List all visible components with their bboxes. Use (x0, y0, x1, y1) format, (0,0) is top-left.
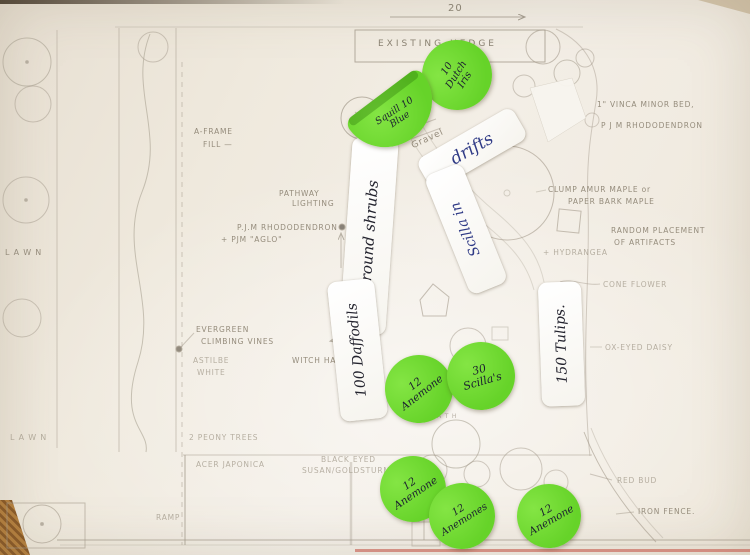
white-label-text: Around shrubs (356, 179, 382, 292)
pencil-note-pathway: PATHWAY (279, 189, 320, 198)
pencil-note-vinca: 1" VINCA MINOR BED, (597, 100, 694, 109)
top-dimension-label: 20 (448, 3, 463, 14)
green-sticker-text: 30Scilla's (459, 359, 504, 393)
green-sticker-text: 10DutchIris (435, 53, 479, 96)
pencil-note-susan-goldsturm: SUSAN/GOLDSTURM (302, 466, 391, 475)
pencil-note-cone-flower: CONE FLOWER (603, 280, 667, 289)
pencil-note-pjm-rhododendron-left: P.J.M RHODODENDRON (237, 223, 338, 232)
white-label-text: Scilla in (448, 200, 484, 259)
pencil-note-iron-fence: IRON FENCE. (638, 507, 695, 516)
green-sticker-text: 12Anemones (434, 493, 490, 539)
pencil-note-red-bud: RED BUD (617, 476, 657, 485)
pencil-note-of-artifacts: OF ARTIFACTS (614, 238, 676, 247)
pencil-note-ox-eyed-daisy: OX-EYED DAISY (605, 343, 673, 352)
white-label-tulips-150: 150 Tulips. (537, 281, 584, 406)
pencil-note-climbing-vines: CLIMBING VINES (201, 337, 274, 346)
pencil-note-evergreen: EVERGREEN (196, 325, 249, 334)
pencil-note-ramp: RAMP (156, 513, 180, 522)
pencil-note-lighting: LIGHTING (292, 199, 334, 208)
pencil-note-clump-amur: CLUMP AMUR MAPLE or (548, 185, 651, 194)
pencil-note-acer-japonica: ACER JAPONICA (196, 460, 265, 469)
pencil-note-hydrangea: + HYDRANGEA (543, 248, 608, 257)
pencil-note-black-eyed: BLACK EYED (321, 455, 376, 464)
white-label-text: 100 Daffodils (344, 302, 370, 397)
pencil-note-pjm-rhododendron-right: P J M RHODODENDRON (601, 121, 703, 130)
green-sticker-text: 12Anemone (392, 365, 445, 414)
pencil-note-pjm-aglo: + PJM "AGLO" (221, 235, 282, 244)
green-sticker-text: 12Anemone (522, 494, 576, 539)
garden-plan-photo: EXISTING HEDGE 20 49' A-FRAMEFILL —PATHW… (0, 0, 750, 555)
pencil-note-random-placement: RANDOM PLACEMENT (611, 226, 705, 235)
white-label-text: 150 Tulips. (552, 304, 571, 384)
pencil-note-peony-trees: 2 PEONY TREES (189, 433, 258, 442)
pencil-note-astilbe: ASTILBE (193, 356, 229, 365)
pencil-note-lawn-lower: L A W N (10, 433, 47, 442)
pencil-note-a-frame-fill: FILL — (203, 140, 233, 149)
pencil-note-a-frame: A-FRAME (194, 127, 233, 136)
pencil-note-paper-bark: PAPER BARK MAPLE (568, 197, 655, 206)
pencil-note-astilbe-white: WHITE (197, 368, 226, 377)
pencil-note-lawn-upper: L A W N (5, 248, 42, 257)
